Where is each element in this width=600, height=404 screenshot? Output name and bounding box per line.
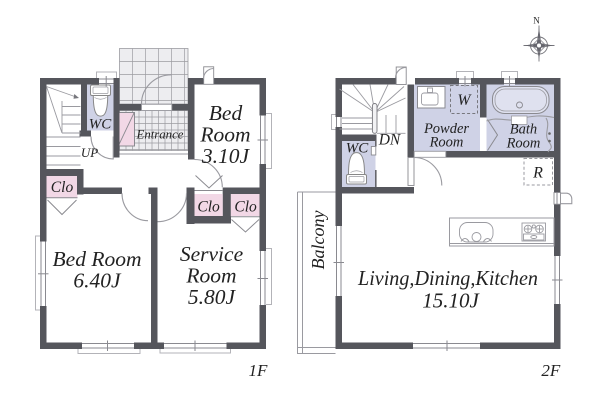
svg-text:5.80J: 5.80J — [188, 285, 237, 309]
svg-text:3.10J: 3.10J — [201, 144, 251, 168]
svg-text:Bed: Bed — [209, 101, 243, 125]
svg-text:W: W — [458, 92, 473, 109]
svg-text:Living,Dining,Kitchen: Living,Dining,Kitchen — [357, 266, 538, 290]
svg-text:Room: Room — [199, 123, 250, 147]
svg-text:DN: DN — [378, 132, 402, 149]
svg-text:WC: WC — [346, 141, 369, 157]
svg-text:6.40J: 6.40J — [73, 269, 122, 293]
svg-text:15.10J: 15.10J — [422, 289, 480, 313]
svg-text:Clo: Clo — [234, 199, 257, 216]
svg-text:Bed Room: Bed Room — [53, 247, 142, 271]
svg-text:2F: 2F — [541, 361, 561, 380]
svg-text:N: N — [533, 16, 540, 26]
svg-text:Room: Room — [185, 264, 236, 288]
svg-text:Room: Room — [506, 136, 541, 152]
svg-text:Service: Service — [180, 242, 244, 266]
svg-text:1F: 1F — [249, 361, 269, 380]
svg-text:Entrance: Entrance — [136, 128, 184, 142]
svg-text:R: R — [532, 165, 543, 182]
svg-text:UP: UP — [81, 145, 98, 160]
svg-text:WC: WC — [89, 117, 112, 133]
svg-text:Clo: Clo — [51, 179, 74, 196]
svg-text:Room: Room — [429, 135, 464, 151]
svg-text:Clo: Clo — [197, 199, 220, 216]
svg-text:Balcony: Balcony — [308, 211, 328, 270]
